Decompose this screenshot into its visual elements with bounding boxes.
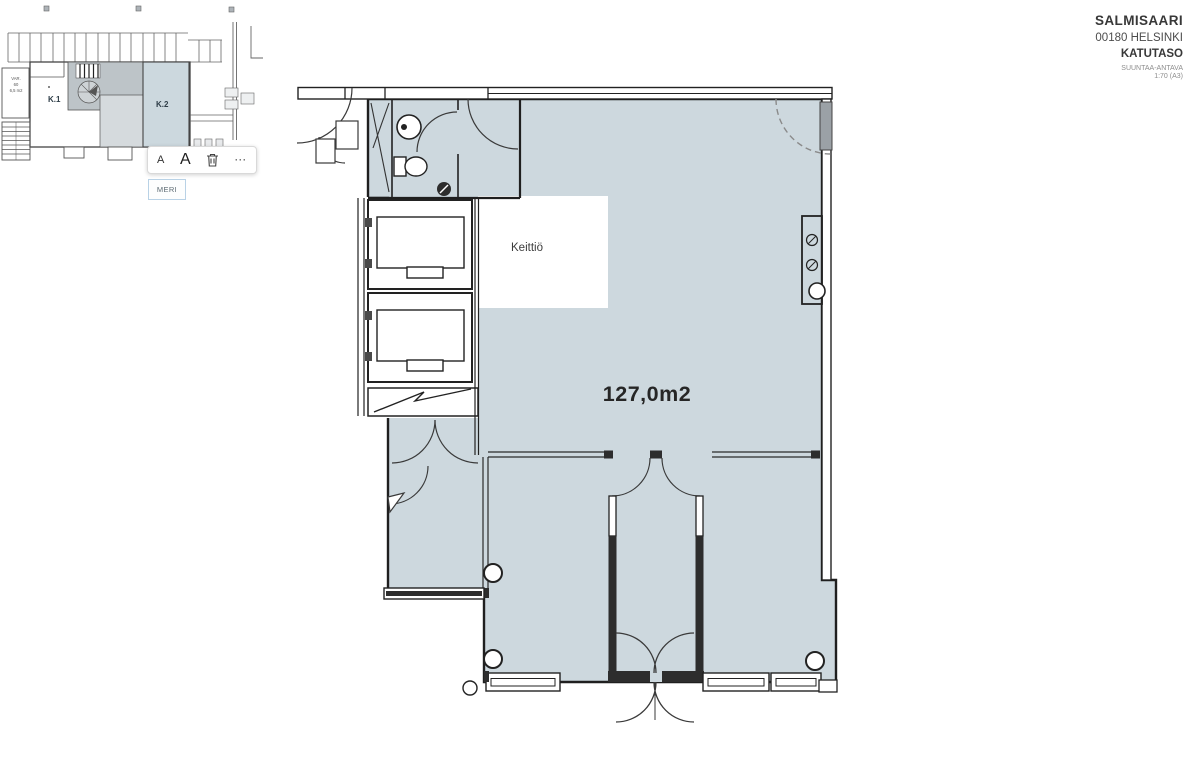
overview-mini-plan: VAR. 60 6,5 m2 K.1 K.2 bbox=[0, 0, 280, 215]
kitchen-units bbox=[358, 197, 479, 455]
project-address: 00180 HELSINKI bbox=[1095, 32, 1183, 44]
var-label-2: 60 bbox=[14, 82, 19, 87]
selection-toolbar: A A ··· bbox=[147, 146, 257, 174]
delete-button[interactable] bbox=[206, 147, 219, 173]
storage-room-var: VAR. 60 6,5 m2 bbox=[2, 68, 29, 118]
sink bbox=[397, 115, 421, 139]
more-options-button[interactable]: ··· bbox=[235, 147, 247, 173]
site-markers bbox=[44, 6, 234, 12]
k1-dot bbox=[48, 86, 50, 88]
facade-vestibules bbox=[64, 147, 132, 160]
main-floor-plan-canvas[interactable]: Keittiö 127,0m2 bbox=[285, 75, 845, 735]
var-label-1: VAR. bbox=[11, 76, 20, 81]
var-label-3: 6,5 m2 bbox=[10, 88, 23, 93]
floorplan-app: VAR. 60 6,5 m2 K.1 K.2 A A bbox=[0, 0, 1200, 768]
selected-tag-chip[interactable]: MERI bbox=[148, 179, 186, 200]
title-block: SALMISAARI 00180 HELSINKI KATUTASO SUUNT… bbox=[1095, 13, 1183, 80]
project-name: SALMISAARI bbox=[1095, 13, 1183, 28]
font-smaller-button[interactable]: A bbox=[157, 147, 164, 173]
facade-window-band bbox=[8, 33, 222, 62]
drawing-scale: 1:70 (A3) bbox=[1095, 73, 1183, 80]
site-context-lines bbox=[190, 22, 263, 147]
room-k2-label[interactable]: K.2 bbox=[156, 100, 169, 109]
area-label: 127,0m2 bbox=[603, 382, 691, 406]
drawing-note: SUUNTAA-ANTAVA bbox=[1095, 65, 1183, 72]
top-wall bbox=[298, 88, 832, 100]
room-k1-label[interactable]: K.1 bbox=[48, 95, 61, 104]
floor-level: KATUTASO bbox=[1095, 48, 1183, 60]
toilet-bowl bbox=[405, 157, 427, 176]
kitchen-label-area bbox=[478, 196, 608, 308]
door-leaf bbox=[820, 102, 832, 150]
font-larger-button[interactable]: A bbox=[180, 147, 191, 173]
trash-icon bbox=[206, 153, 219, 167]
stairs bbox=[2, 122, 30, 160]
toilet-tank bbox=[394, 157, 406, 176]
kitchen-label: Keittiö bbox=[511, 242, 543, 254]
